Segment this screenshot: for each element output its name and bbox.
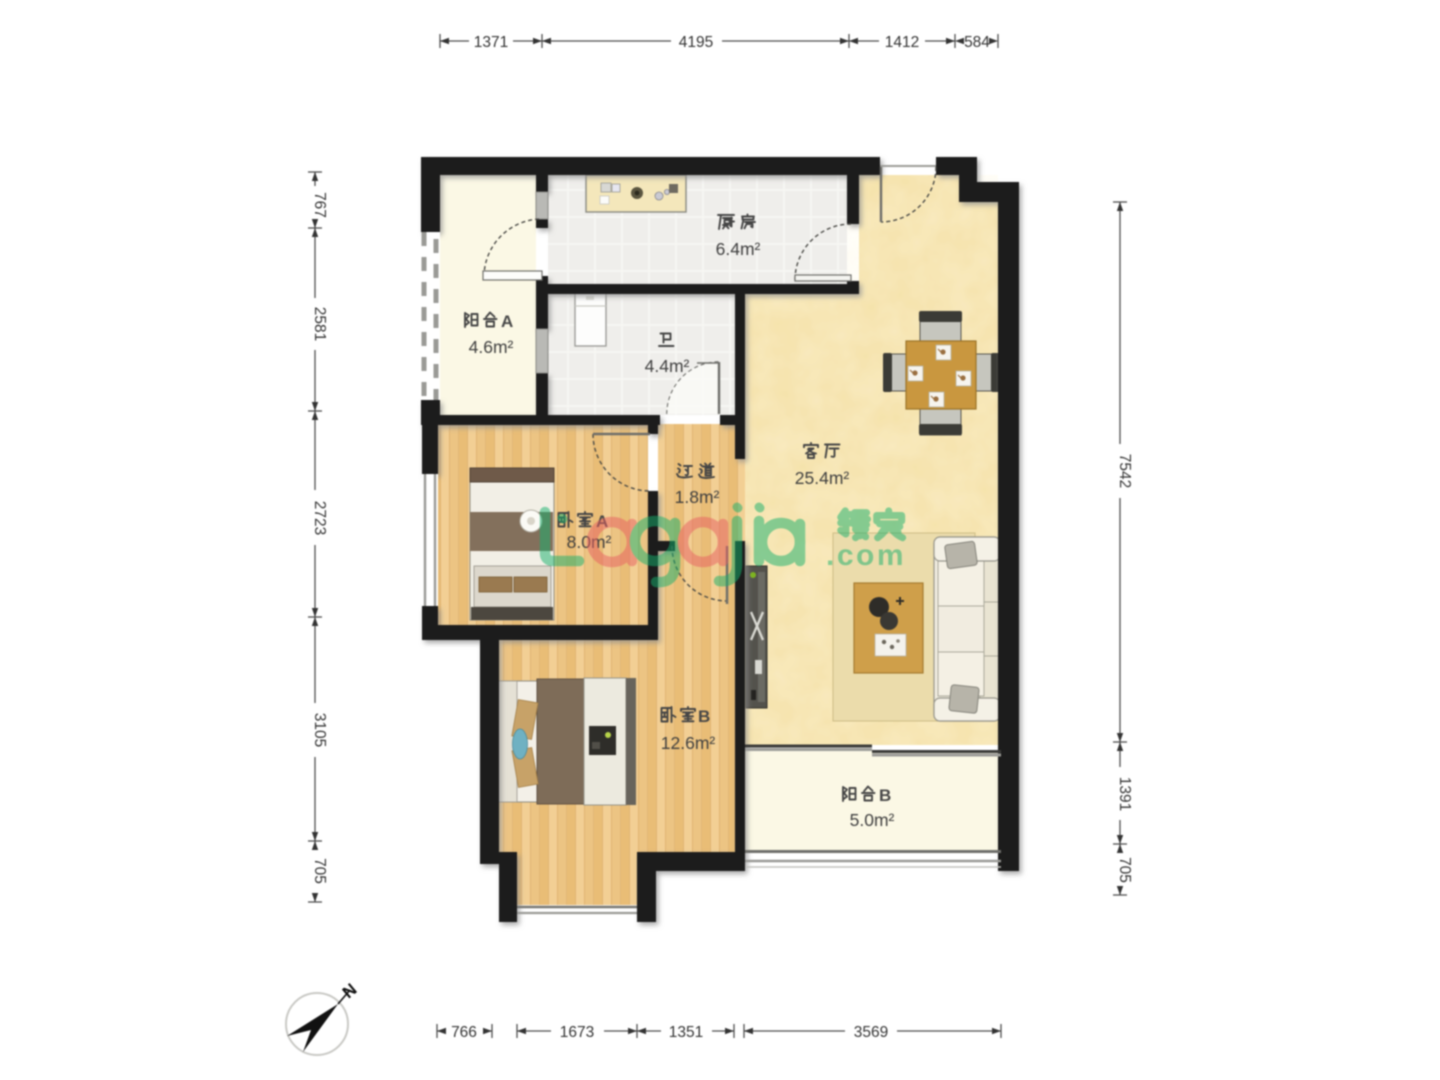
svg-text:A: A xyxy=(501,312,513,331)
svg-text:25.4m²: 25.4m² xyxy=(795,468,850,488)
svg-text:2723: 2723 xyxy=(311,501,328,535)
svg-text:4195: 4195 xyxy=(679,34,713,51)
svg-text:7542: 7542 xyxy=(1116,454,1133,488)
svg-text:6.4m²: 6.4m² xyxy=(716,239,761,259)
svg-text:4.4m²: 4.4m² xyxy=(645,356,690,376)
svg-text:1.8m²: 1.8m² xyxy=(675,487,720,507)
svg-text:1673: 1673 xyxy=(560,1024,594,1041)
svg-text:3569: 3569 xyxy=(854,1024,888,1041)
svg-text:B: B xyxy=(879,786,891,805)
svg-text:1391: 1391 xyxy=(1116,777,1133,811)
svg-text:5.0m²: 5.0m² xyxy=(850,810,895,830)
svg-text:12.6m²: 12.6m² xyxy=(661,733,716,753)
svg-text:705: 705 xyxy=(311,858,328,884)
svg-text:767: 767 xyxy=(311,192,328,218)
svg-text:3105: 3105 xyxy=(311,713,328,747)
svg-text:.com: .com xyxy=(826,539,906,572)
svg-text:1412: 1412 xyxy=(885,34,919,51)
svg-text:705: 705 xyxy=(1116,857,1133,883)
svg-text:4.6m²: 4.6m² xyxy=(469,337,514,357)
svg-text:2581: 2581 xyxy=(311,307,328,341)
svg-text:584: 584 xyxy=(964,34,990,51)
svg-text:766: 766 xyxy=(451,1024,477,1041)
svg-text:1371: 1371 xyxy=(474,34,508,51)
svg-text:B: B xyxy=(698,707,710,726)
svg-text:1351: 1351 xyxy=(669,1024,703,1041)
